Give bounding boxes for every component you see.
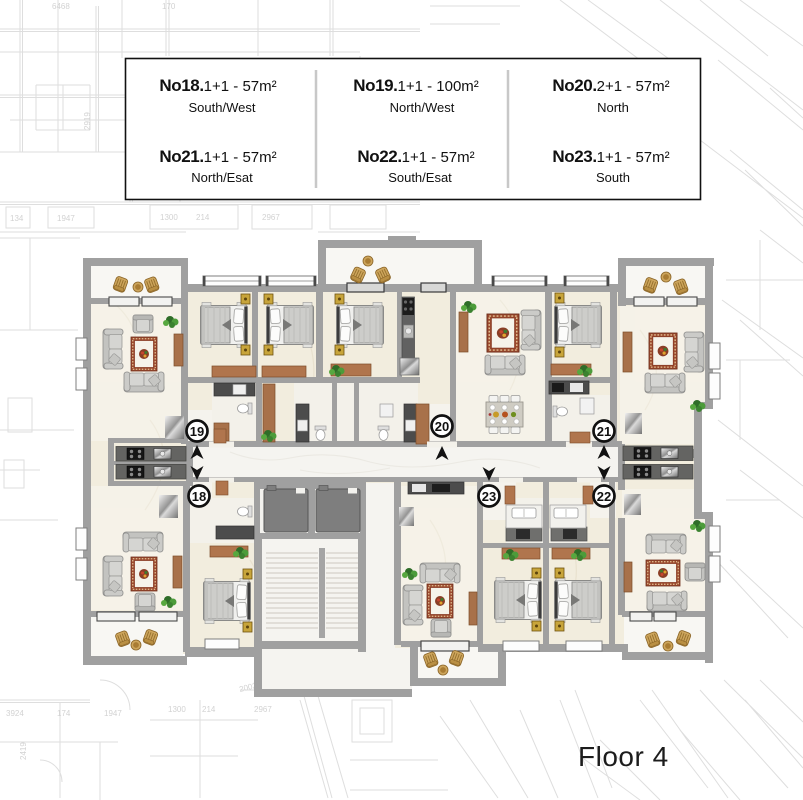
svg-text:214: 214 [196,213,210,222]
svg-text:North: North [597,100,629,115]
svg-text:No20.2+1 - 57m²: No20.2+1 - 57m² [552,76,669,95]
svg-text:6468: 6468 [52,2,70,11]
svg-text:2967: 2967 [254,705,272,714]
svg-text:23: 23 [482,489,496,504]
svg-text:174: 174 [57,709,71,718]
svg-text:19: 19 [190,424,204,439]
svg-text:214: 214 [202,705,216,714]
svg-text:2419: 2419 [19,742,28,760]
svg-text:170: 170 [162,2,176,11]
svg-text:1300: 1300 [168,705,186,714]
svg-text:North/Esat: North/Esat [191,170,253,185]
svg-text:1947: 1947 [104,709,122,718]
svg-text:South/West: South/West [189,100,256,115]
svg-text:1947: 1947 [57,214,75,223]
svg-text:2967: 2967 [262,213,280,222]
svg-text:22: 22 [597,489,611,504]
svg-text:South/Esat: South/Esat [388,170,452,185]
svg-text:20: 20 [435,419,449,434]
svg-text:134: 134 [10,214,24,223]
svg-text:18: 18 [192,489,206,504]
svg-text:No18.1+1 - 57m²: No18.1+1 - 57m² [159,76,276,95]
svg-text:2919: 2919 [83,112,92,130]
svg-text:South: South [596,170,630,185]
svg-text:No21.1+1 - 57m²: No21.1+1 - 57m² [159,147,276,166]
svg-text:No19.1+1 - 100m²: No19.1+1 - 100m² [353,76,479,95]
svg-text:3924: 3924 [6,709,24,718]
svg-text:No22.1+1 - 57m²: No22.1+1 - 57m² [357,147,474,166]
svg-text:Floor 4: Floor 4 [578,741,669,772]
svg-text:North/West: North/West [390,100,455,115]
svg-text:1300: 1300 [160,213,178,222]
svg-text:No23.1+1 - 57m²: No23.1+1 - 57m² [552,147,669,166]
svg-text:21: 21 [597,424,611,439]
